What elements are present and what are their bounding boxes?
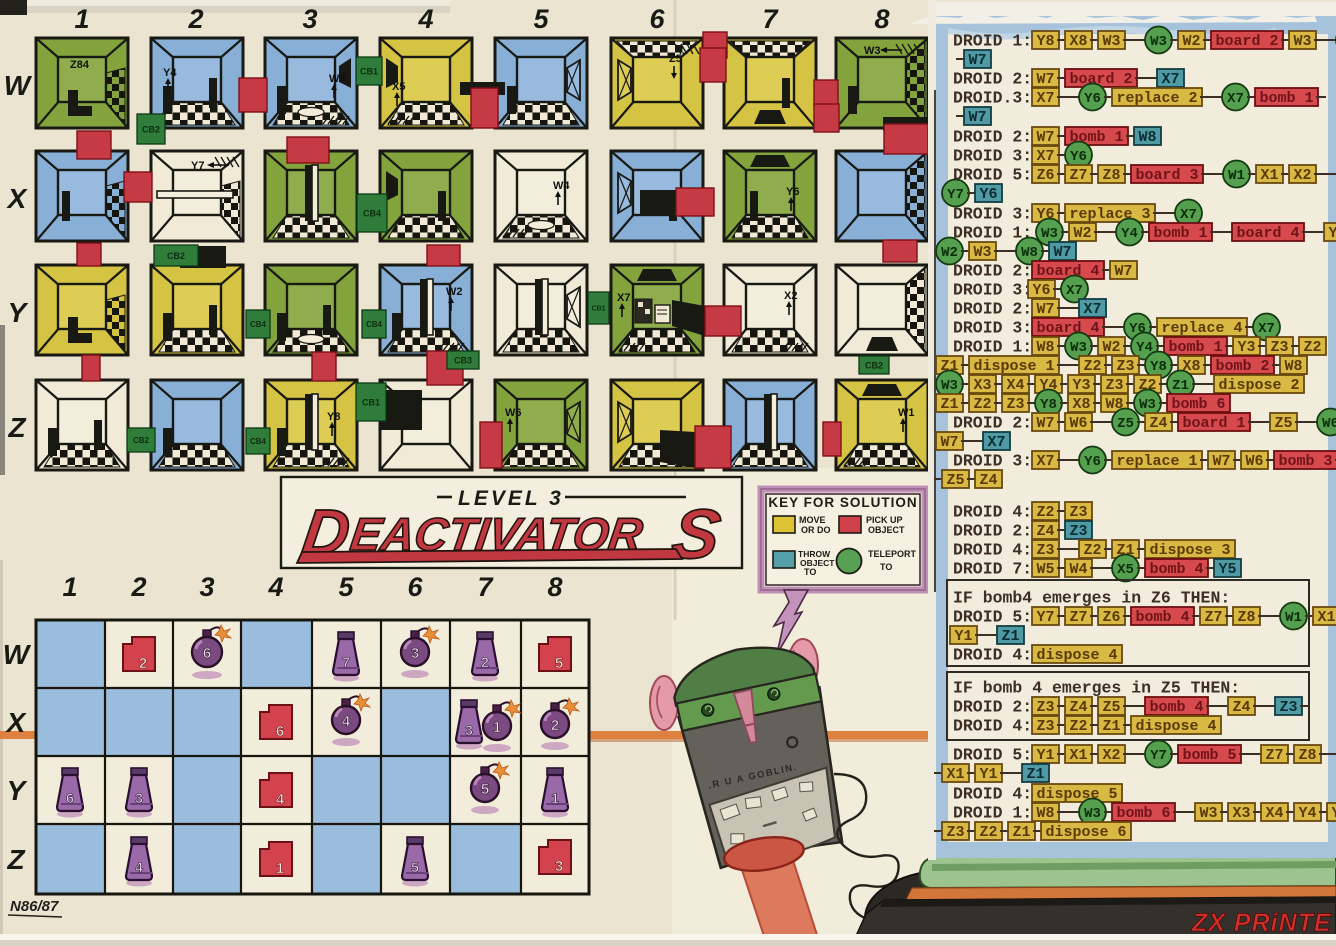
svg-text:W4: W4 [553,180,570,192]
svg-text:X4: X4 [1006,377,1024,394]
svg-text:W8: W8 [1036,339,1054,356]
svg-text:X2: X2 [1102,747,1120,764]
svg-text:Z4: Z4 [979,472,997,489]
svg-text:Z6: Z6 [1102,609,1120,626]
svg-text:X8: X8 [1072,396,1090,413]
svg-text:Y5: Y5 [1218,561,1236,578]
svg-text:1: 1 [493,719,501,736]
svg-text:board 4: board 4 [1236,225,1299,242]
svg-text:W7: W7 [1114,263,1132,280]
svg-text:W2: W2 [1182,33,1200,50]
svg-text:OR DO: OR DO [801,525,831,535]
svg-text:DROID 4:: DROID 4: [953,646,1032,665]
svg-text:6: 6 [649,4,665,34]
svg-text:X8: X8 [1069,33,1087,50]
svg-text:CB1: CB1 [362,397,380,407]
svg-text:Z: Z [6,844,25,875]
svg-text:Z3: Z3 [1036,718,1054,735]
svg-text:Y6: Y6 [1084,454,1101,470]
svg-text:DROID 5:: DROID 5: [953,608,1032,627]
svg-text:X7: X7 [987,434,1005,451]
svg-text:DROID 4:: DROID 4: [953,503,1032,522]
svg-text:DROID 1:: DROID 1: [953,32,1032,51]
svg-text:W7: W7 [968,52,986,69]
svg-text:8: 8 [547,572,562,602]
svg-text:7: 7 [477,572,494,602]
svg-text:Y8: Y8 [1040,397,1057,413]
svg-text:W1: W1 [1285,610,1302,626]
svg-text:5: 5 [481,781,489,798]
svg-text:replace 4: replace 4 [1161,320,1242,337]
svg-text:bomb 5: bomb 5 [1182,747,1236,764]
svg-text:2: 2 [130,572,146,602]
svg-text:bomb 2: bomb 2 [1215,358,1269,375]
svg-text:bomb 4: bomb 4 [1149,699,1203,716]
svg-text:DROID 2:: DROID 2: [953,522,1032,541]
svg-text:W7: W7 [940,434,958,451]
svg-text:Z6: Z6 [1036,167,1054,184]
svg-text:X7: X7 [1227,91,1244,107]
svg-text:W4: W4 [1069,561,1087,578]
svg-text:IF bomb 4 emerges in Z5 THEN:: IF bomb 4 emerges in Z5 THEN: [953,679,1240,698]
svg-text:4: 4 [342,713,351,730]
svg-text:7: 7 [342,654,350,670]
svg-text:Y8: Y8 [1036,33,1054,50]
svg-text:X7: X7 [1036,90,1054,107]
svg-text:W3: W3 [1070,340,1087,356]
svg-text:W8: W8 [1036,805,1054,822]
svg-text:dispose 6: dispose 6 [1045,824,1126,841]
svg-text:DROID 2:: DROID 2: [953,262,1032,281]
svg-text:X7: X7 [1180,207,1197,223]
svg-text:3: 3 [465,722,473,738]
svg-text:Z5: Z5 [946,472,964,489]
svg-text:Z84: Z84 [70,59,90,71]
svg-text:Z7: Z7 [1069,167,1087,184]
svg-text:W3: W3 [1199,805,1217,822]
svg-text:TO: TO [804,567,816,577]
svg-text:X7: X7 [1258,321,1275,337]
svg-text:dispose 2: dispose 2 [1218,377,1299,394]
svg-text:Y1: Y1 [954,628,972,645]
svg-text:Z1: Z1 [1026,766,1044,783]
svg-text:Z1: Z1 [1172,378,1189,394]
svg-text:bomb 1: bomb 1 [1168,339,1222,356]
svg-text:TO: TO [880,562,892,572]
svg-text:Y1: Y1 [1036,747,1054,764]
svg-text:Y: Y [8,297,29,328]
svg-text:W3: W3 [1293,33,1311,50]
svg-text:Z8: Z8 [1237,609,1255,626]
svg-text:3: 3 [411,645,419,662]
svg-text:Y3: Y3 [1237,339,1255,356]
svg-text:5: 5 [555,655,563,672]
svg-text:Z1: Z1 [940,396,958,413]
svg-text:CB4: CB4 [366,320,383,329]
svg-text:board 4: board 4 [1036,320,1099,337]
svg-text:W3: W3 [973,244,991,261]
svg-text:replace 3: replace 3 [1069,206,1150,223]
svg-text:Y6: Y6 [1032,282,1050,299]
svg-text:Z3: Z3 [1006,396,1024,413]
svg-text:Z2: Z2 [1083,358,1101,375]
svg-text:3: 3 [199,572,214,602]
svg-text:3: 3 [135,790,143,806]
svg-text:1: 1 [551,790,559,806]
svg-text:DROID.3:: DROID.3: [953,89,1032,108]
svg-text:1: 1 [74,4,89,34]
svg-text:W2: W2 [1073,225,1091,242]
svg-text:CB2: CB2 [865,360,883,370]
svg-text:5: 5 [338,572,354,602]
svg-text:Z3: Z3 [1036,542,1054,559]
svg-text:W7: W7 [1212,453,1230,470]
svg-text:W1: W1 [898,407,915,419]
svg-text:DROID 4:: DROID 4: [953,717,1032,736]
svg-text:Z7: Z7 [1069,609,1087,626]
svg-text:5: 5 [411,859,419,875]
svg-text:Y7: Y7 [947,187,964,203]
svg-text:X3: X3 [973,377,991,394]
svg-text:W2: W2 [1102,339,1120,356]
svg-text:W6: W6 [1069,415,1087,432]
svg-text:Y4: Y4 [1121,226,1138,242]
svg-text:DROID 2:: DROID 2: [953,300,1032,319]
svg-text:DROID 2:: DROID 2: [953,70,1032,89]
svg-text:7: 7 [762,4,779,34]
svg-text:X7: X7 [1036,148,1054,165]
svg-text:Z3: Z3 [1279,699,1297,716]
svg-text:CB3: CB3 [454,355,472,365]
svg-text:DROID 3:: DROID 3: [953,205,1032,224]
svg-text:2: 2 [551,717,559,734]
svg-text:dispose 5: dispose 5 [1036,786,1117,803]
svg-text:W7: W7 [1036,415,1054,432]
svg-text:DROID 2:: DROID 2: [953,128,1032,147]
svg-text:DROID 5:: DROID 5: [953,746,1032,765]
svg-text:replace 2: replace 2 [1116,90,1197,107]
svg-text:W: W [4,70,33,101]
svg-text:W8: W8 [1021,245,1038,261]
svg-text:W8: W8 [1284,358,1302,375]
svg-text:Z3: Z3 [1270,339,1288,356]
svg-text:DROID 1:: DROID 1: [953,338,1032,357]
svg-text:X7: X7 [1161,71,1179,88]
svg-text:W7: W7 [1036,129,1054,146]
svg-text:DROID 3:: DROID 3: [953,147,1032,166]
svg-text:board 3: board 3 [1135,167,1198,184]
svg-text:W7: W7 [1036,71,1054,88]
svg-text:dispose 4: dispose 4 [1135,718,1216,735]
svg-text:CB4: CB4 [363,208,381,218]
svg-text:8: 8 [874,4,889,34]
svg-text:CB4: CB4 [250,437,267,446]
svg-text:Y8: Y8 [1150,359,1167,375]
svg-text:Z4: Z4 [1069,699,1087,716]
svg-text:Y6: Y6 [1070,149,1087,165]
svg-text:W3: W3 [1041,226,1058,242]
svg-text:KEY FOR SOLUTION: KEY FOR SOLUTION [768,495,917,510]
svg-text:Y7: Y7 [191,160,204,172]
svg-text:CB4: CB4 [250,320,267,329]
svg-text:Z2: Z2 [1083,542,1101,559]
svg-text:3: 3 [302,4,317,34]
svg-text:PICK UP: PICK UP [866,515,903,525]
svg-text:X2: X2 [1293,167,1311,184]
svg-text:ZX PRiNTE: ZX PRiNTE [1191,909,1332,937]
svg-text:DROID 4:: DROID 4: [953,541,1032,560]
svg-text:Y4: Y4 [1328,225,1336,242]
svg-text:bomb 1: bomb 1 [1153,225,1207,242]
svg-text:2: 2 [187,4,203,34]
svg-text:Z8: Z8 [1298,747,1316,764]
svg-text:Y3: Y3 [1072,377,1090,394]
svg-text:4: 4 [276,791,285,808]
svg-text:DROID 3:: DROID 3: [953,452,1032,471]
svg-text:CB1: CB1 [591,306,605,313]
svg-text:Z3: Z3 [1069,523,1087,540]
svg-text:DROID 1:: DROID 1: [953,804,1032,823]
svg-text:X7: X7 [1066,283,1083,299]
svg-text:dispose 3: dispose 3 [1149,542,1230,559]
svg-text:CB1: CB1 [360,66,378,76]
svg-text:X: X [6,183,29,214]
svg-text:Y7: Y7 [1150,748,1167,764]
svg-text:Z5: Z5 [669,53,682,65]
svg-text:Y6: Y6 [1084,91,1101,107]
svg-text:X2: X2 [784,290,797,302]
svg-text:Z5: Z5 [1274,415,1292,432]
svg-text:board 2: board 2 [1215,33,1278,50]
svg-text:W3: W3 [864,45,881,57]
svg-text:bomb 3: bomb 3 [1278,453,1332,470]
svg-text:W: W [3,639,32,670]
svg-text:Z1: Z1 [1012,824,1030,841]
svg-text:Z4: Z4 [1036,523,1054,540]
svg-text:W5: W5 [1036,561,1054,578]
svg-text:W3: W3 [1139,397,1156,413]
svg-text:Z: Z [7,412,26,443]
svg-text:W3: W3 [1084,806,1101,822]
svg-text:X1: X1 [946,766,964,783]
svg-text:W8: W8 [329,73,346,85]
svg-text:CB2: CB2 [142,124,160,134]
svg-text:Z7: Z7 [1204,609,1222,626]
svg-text:W2: W2 [941,245,958,261]
svg-text:Z2: Z2 [1303,339,1321,356]
svg-text:Z3: Z3 [946,824,964,841]
svg-text:Z5: Z5 [1117,416,1134,432]
svg-text:DROID 2:: DROID 2: [953,698,1032,717]
svg-text:W6: W6 [1322,416,1336,432]
svg-text:DROID 7:: DROID 7: [953,560,1032,579]
svg-text:Y8: Y8 [327,411,340,423]
svg-text:bomb 6: bomb 6 [1116,805,1170,822]
svg-text:3: 3 [555,858,563,875]
svg-text:1: 1 [62,572,77,602]
svg-text:Z2: Z2 [1036,504,1054,521]
svg-text:IF bomb4 emerges in Z6 THEN:: IF bomb4 emerges in Z6 THEN: [953,589,1230,608]
svg-text:6: 6 [66,790,74,806]
svg-text:X7: X7 [1083,301,1101,318]
svg-text:Z1: Z1 [1102,718,1120,735]
svg-text:CB2: CB2 [133,436,150,445]
svg-text:X7: X7 [1036,453,1054,470]
svg-text:Z4: Z4 [1232,699,1250,716]
svg-text:TELEPORT: TELEPORT [868,549,917,559]
svg-text:Z3: Z3 [1069,504,1087,521]
svg-text:Z7: Z7 [1265,747,1283,764]
svg-text:6: 6 [203,645,211,662]
svg-text:5: 5 [533,4,549,34]
svg-text:X3: X3 [1232,805,1250,822]
svg-text:bomb 1: bomb 1 [1259,90,1313,107]
svg-text:Z5: Z5 [1102,699,1120,716]
svg-text:Z1: Z1 [1001,628,1019,645]
svg-text:W7: W7 [1053,244,1071,261]
svg-text:Z2: Z2 [973,396,991,413]
svg-text:X4: X4 [1265,805,1283,822]
svg-text:W1: W1 [1228,168,1245,184]
svg-text:X5: X5 [392,81,405,93]
svg-text:W7: W7 [1036,301,1054,318]
svg-text:Y6: Y6 [786,186,799,198]
svg-text:bomb 6: bomb 6 [1171,396,1225,413]
svg-text:DROID 3:: DROID 3: [953,319,1032,338]
svg-text:X5: X5 [1117,562,1134,578]
svg-text:X7: X7 [617,292,630,304]
svg-text:W3: W3 [941,378,958,394]
svg-text:DROID 1:: DROID 1: [953,224,1032,243]
svg-text:Z2: Z2 [1069,718,1087,735]
svg-text:W2: W2 [446,286,463,298]
svg-text:W3: W3 [1150,34,1167,50]
svg-text:6: 6 [276,723,284,740]
svg-text:W7: W7 [968,109,986,126]
svg-text:Y3: Y3 [1331,805,1336,822]
svg-text:dispose 1: dispose 1 [973,358,1054,375]
svg-text:bomb 4: bomb 4 [1135,609,1189,626]
svg-text:Y4: Y4 [1298,805,1316,822]
svg-text:DROID 4:: DROID 4: [953,785,1032,804]
svg-text:1: 1 [276,860,284,877]
svg-text:Y1: Y1 [979,766,997,783]
svg-text:W8: W8 [1138,129,1156,146]
svg-text:N86/87: N86/87 [10,898,59,915]
svg-text:bomb 4: bomb 4 [1149,561,1203,578]
svg-text:4: 4 [135,859,143,875]
svg-text:CB2: CB2 [167,251,185,261]
svg-text:4: 4 [417,4,433,34]
svg-text:X: X [5,707,28,738]
svg-text:2: 2 [139,655,147,672]
svg-text:LEVEL 3: LEVEL 3 [458,487,564,510]
svg-text:Z4: Z4 [1149,415,1167,432]
svg-text:Z8: Z8 [1102,167,1120,184]
svg-text:X1: X1 [1260,167,1278,184]
svg-text:2: 2 [481,654,489,670]
svg-text:DROID 2:: DROID 2: [953,414,1032,433]
svg-text:OBJECT: OBJECT [868,525,905,535]
svg-text:Y: Y [7,775,28,806]
svg-text:DROID 3:: DROID 3: [953,281,1032,300]
svg-text:X1: X1 [1069,747,1087,764]
svg-text:DROID 5:: DROID 5: [953,166,1032,185]
svg-text:Y6: Y6 [979,186,997,203]
svg-text:Z2: Z2 [979,824,997,841]
svg-text:X1: X1 [1317,609,1335,626]
svg-text:W3: W3 [1102,33,1120,50]
svg-text:Y4: Y4 [163,67,177,79]
svg-text:Z3: Z3 [1116,358,1134,375]
svg-text:Z3: Z3 [1036,699,1054,716]
svg-text:6: 6 [407,572,423,602]
svg-text:MOVE: MOVE [799,515,826,525]
svg-text:W6: W6 [505,407,522,419]
svg-text:Z3: Z3 [1105,377,1123,394]
svg-text:4: 4 [267,572,283,602]
svg-text:replace 1: replace 1 [1116,453,1197,470]
svg-text:board 1: board 1 [1182,415,1245,432]
svg-text:dispose 4: dispose 4 [1036,647,1117,664]
svg-text:Y7: Y7 [1036,609,1054,626]
svg-text:W6: W6 [1245,453,1263,470]
